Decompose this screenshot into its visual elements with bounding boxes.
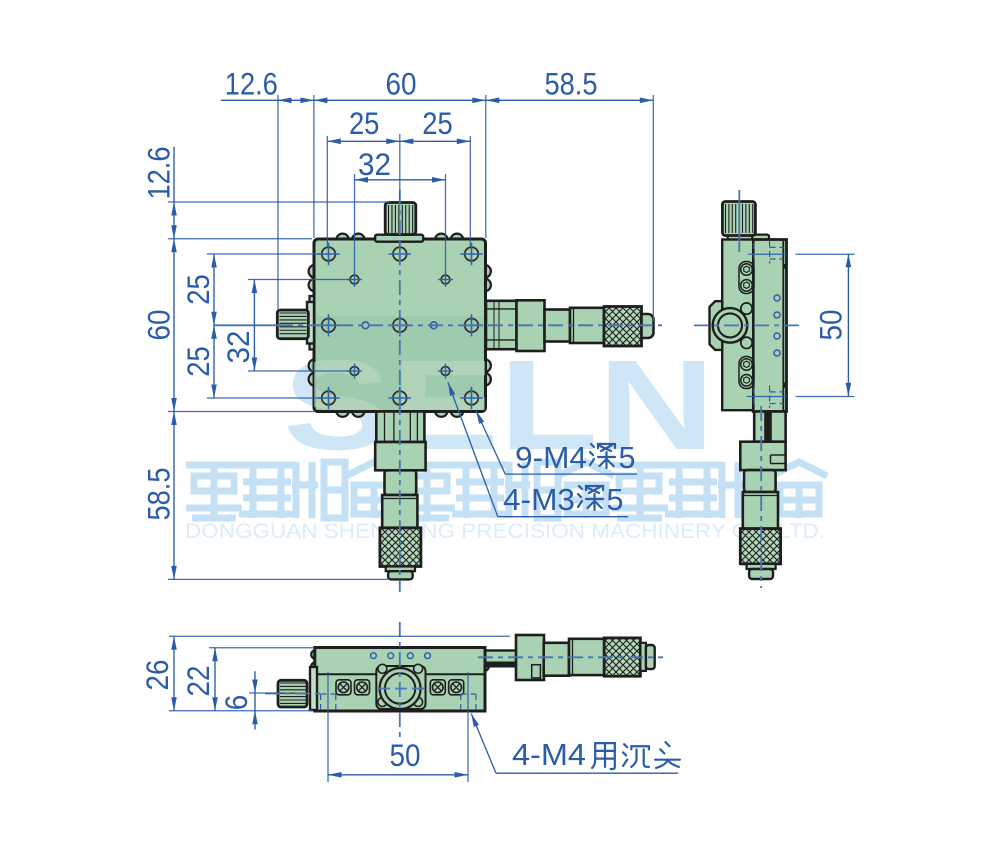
svg-text:25: 25 [180,346,216,377]
svg-text:4-M4: 4-M4 [512,737,586,772]
svg-text:58.5: 58.5 [545,66,598,102]
svg-text:50: 50 [390,737,421,773]
svg-text:26: 26 [139,660,175,691]
svg-text:12.6: 12.6 [225,66,278,102]
svg-text:22: 22 [180,666,216,697]
svg-text:32: 32 [358,146,391,182]
svg-text:25: 25 [422,105,453,141]
svg-text:25: 25 [349,105,380,141]
svg-text:58.5: 58.5 [141,468,177,521]
svg-text:5: 5 [607,482,624,517]
svg-text:50: 50 [813,310,849,341]
svg-text:12.6: 12.6 [141,147,177,200]
svg-text:32: 32 [220,331,256,364]
svg-text:9-M4: 9-M4 [515,440,587,475]
svg-text:DONGGUAN SHENGJING PRECISION M: DONGGUAN SHENGJING PRECISION MACHINERY C… [185,519,825,543]
svg-text:6: 6 [218,695,254,711]
svg-text:4-M3: 4-M3 [503,482,575,517]
svg-text:5: 5 [619,440,636,475]
svg-text:60: 60 [386,66,417,102]
svg-text:60: 60 [141,310,177,341]
svg-text:25: 25 [180,274,216,305]
